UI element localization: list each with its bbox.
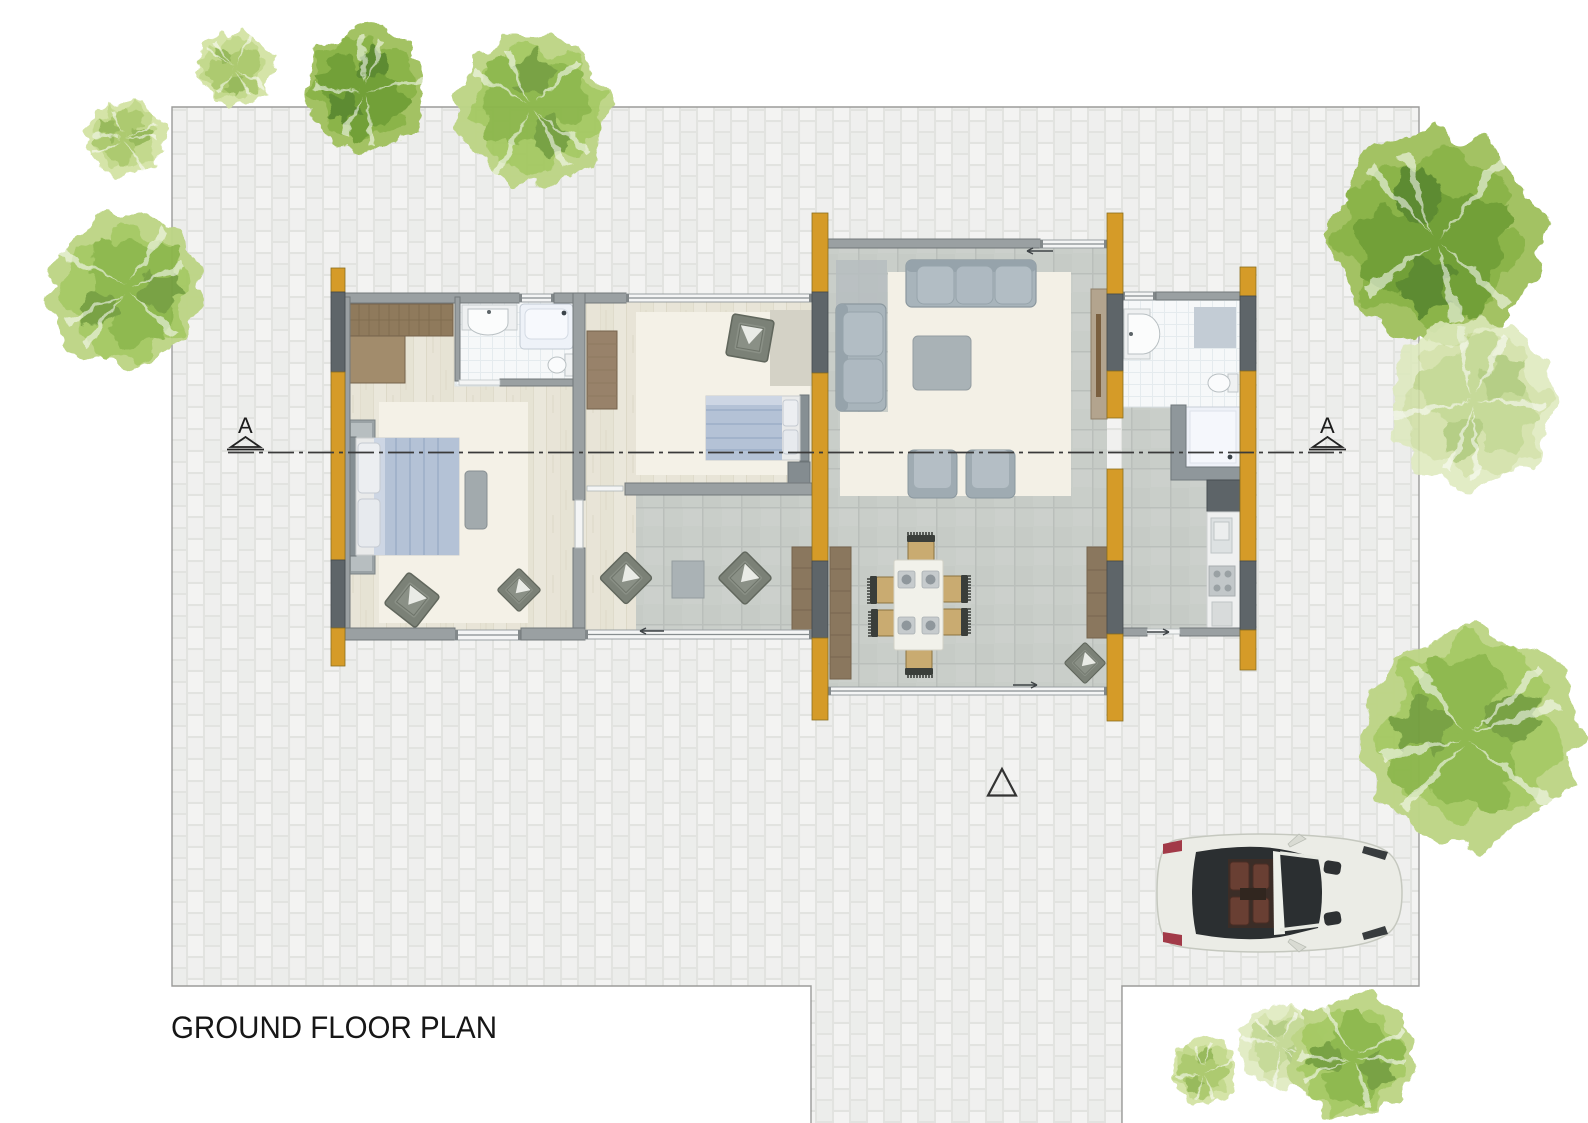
svg-text:A: A: [1320, 413, 1335, 438]
svg-text:GROUND FLOOR PLAN: GROUND FLOOR PLAN: [171, 1009, 497, 1045]
svg-text:A: A: [238, 413, 253, 438]
